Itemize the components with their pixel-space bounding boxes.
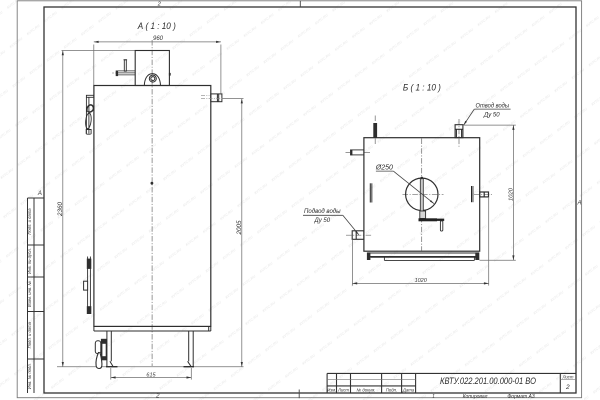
svg-text:Подп. и дата: Подп. и дата [27,208,32,235]
svg-text:Подп. и дата: Подп. и дата [27,321,32,348]
svg-text:Б ( 1 : 10 ): Б ( 1 : 10 ) [403,82,441,92]
svg-text:1: 1 [432,394,435,400]
svg-text:Изм.: Изм. [327,387,336,392]
svg-text:Подп.: Подп. [386,387,397,392]
svg-text:Лист: Лист [561,374,573,379]
svg-text:615: 615 [146,372,156,378]
svg-text:2: 2 [565,384,570,391]
svg-text:2: 2 [155,393,160,399]
svg-text:Формат А3: Формат А3 [507,394,535,400]
svg-text:А ( 1 : 10 ): А ( 1 : 10 ) [137,21,176,31]
svg-text:А: А [37,191,42,197]
svg-text:Отвод воды: Отвод воды [476,102,510,109]
svg-text:Лист: Лист [337,387,349,392]
svg-text:2: 2 [157,1,161,7]
svg-text:2360: 2360 [57,202,64,218]
svg-text:Инв. № дубл.: Инв. № дубл. [27,248,32,274]
svg-text:Ø250: Ø250 [375,165,393,172]
svg-text:Взам. инв. №: Взам. инв. № [27,281,32,307]
svg-text:2005: 2005 [236,220,243,236]
svg-text:1020: 1020 [415,278,428,284]
svg-text:№ докум.: № докум. [357,387,376,392]
svg-text:960: 960 [153,36,164,42]
svg-text:Подвод воды: Подвод воды [304,208,341,215]
svg-text:А: А [576,201,581,207]
svg-text:Ду 50: Ду 50 [483,112,500,118]
svg-text:Дата: Дата [402,387,415,392]
svg-text:Инв. № подл.: Инв. № подл. [27,363,32,389]
svg-text:Ду 50: Ду 50 [313,218,330,224]
svg-text:Копировал: Копировал [463,394,488,400]
svg-text:1020: 1020 [509,187,515,201]
svg-text:КВТУ.022.201.00.000-01 ВО: КВТУ.022.201.00.000-01 ВО [440,376,536,386]
